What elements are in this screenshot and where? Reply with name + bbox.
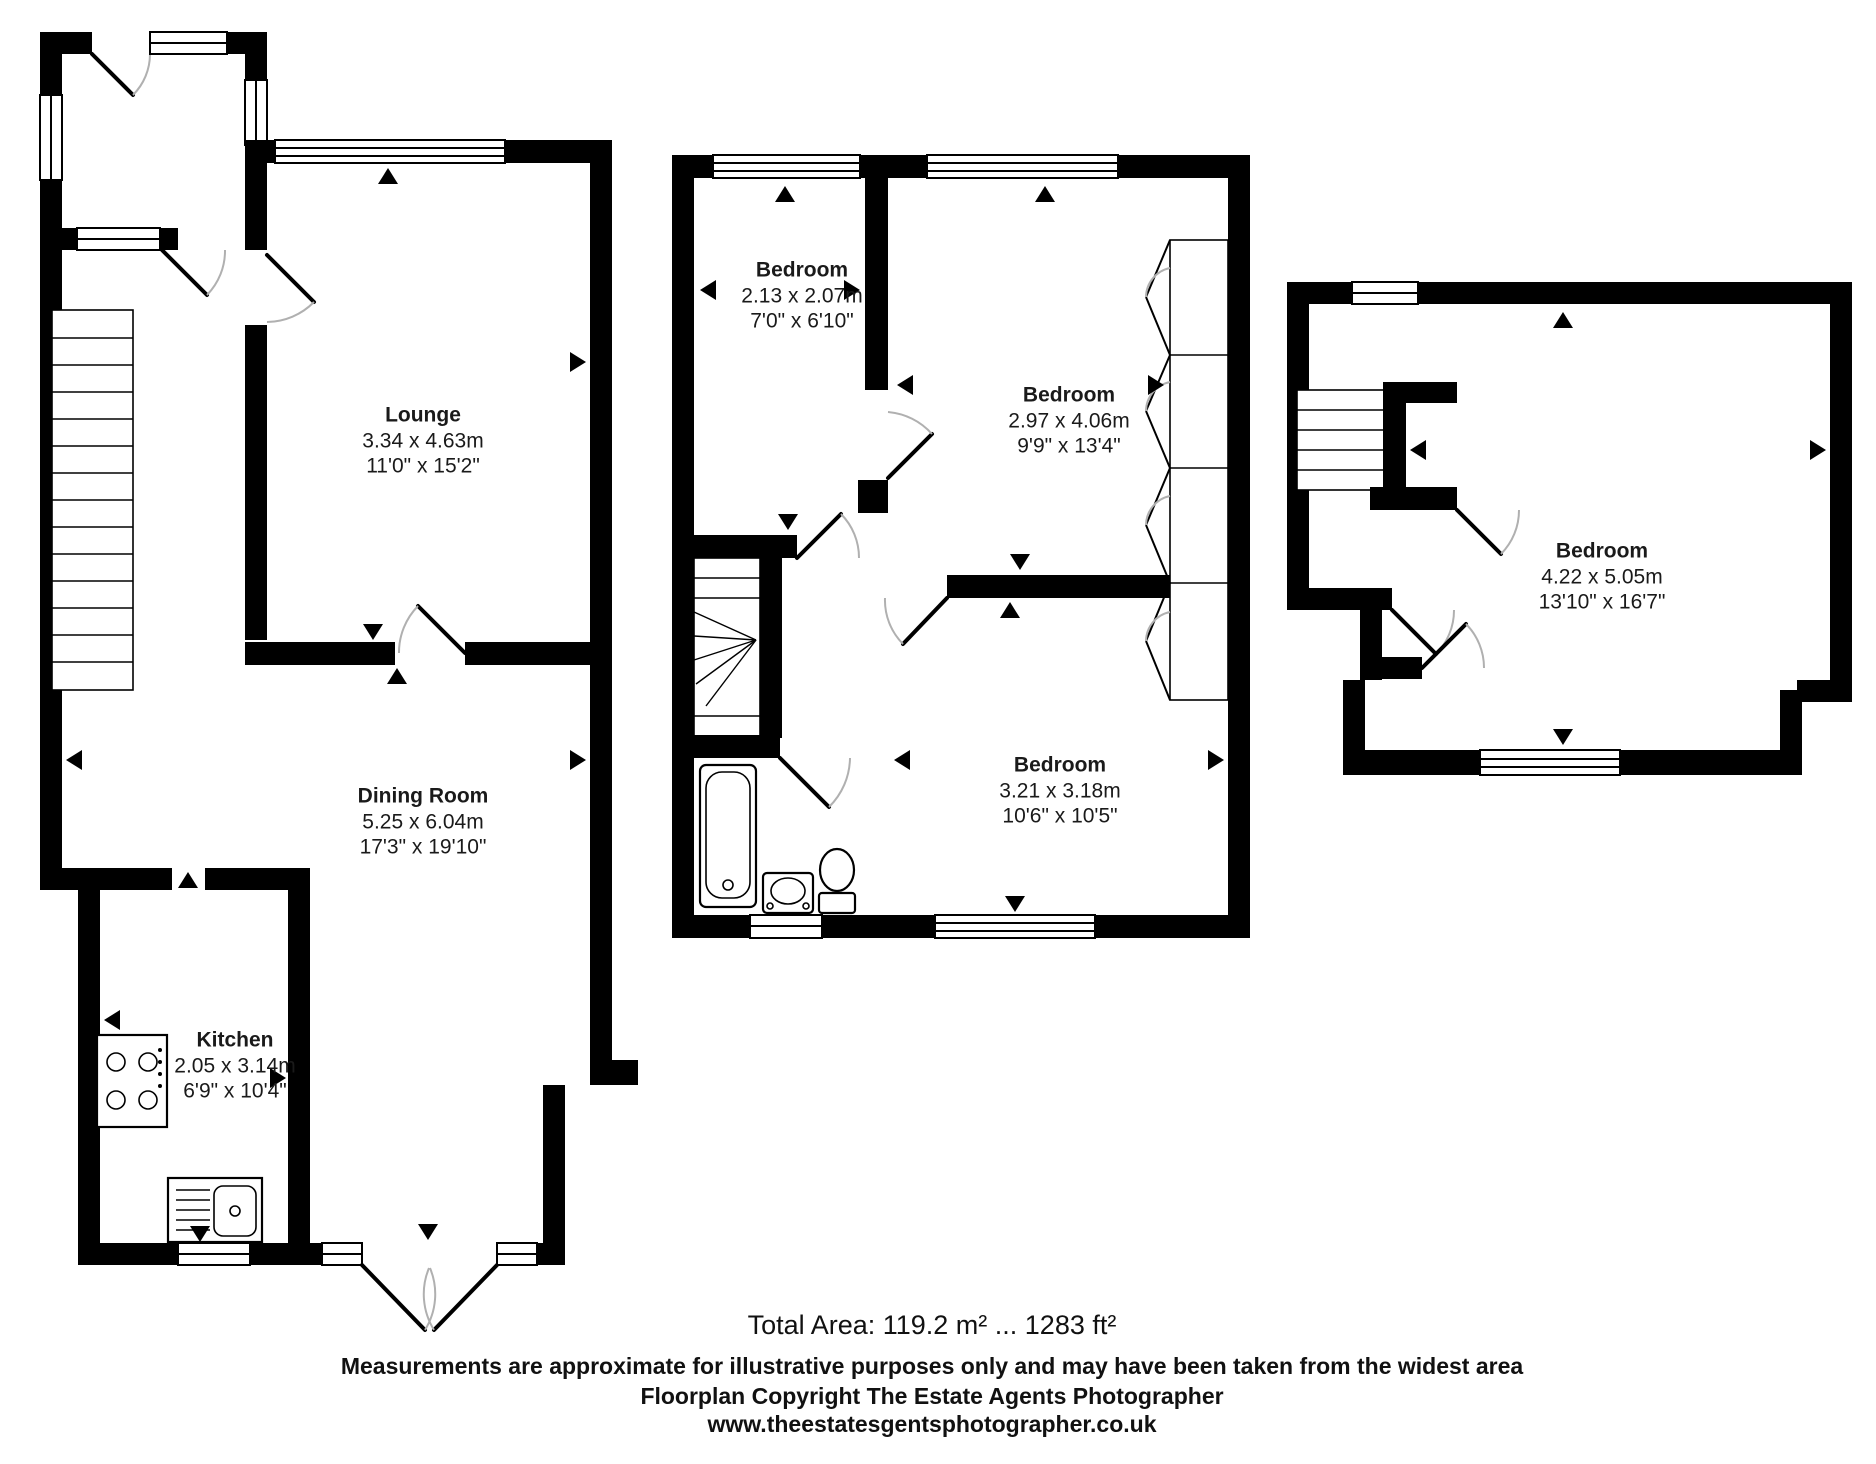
room-label-bedroom-4: Bedroom 4.22 x 5.05m 13'10" x 16'7" <box>1539 539 1666 616</box>
room-dim-imperial: 6'9" x 10'4" <box>174 1079 295 1105</box>
room-dim-metric: 5.25 x 6.04m <box>358 809 489 835</box>
room-label-kitchen: Kitchen 2.05 x 3.14m 6'9" x 10'4" <box>174 1028 295 1105</box>
room-label-bedroom-3: Bedroom 3.21 x 3.18m 10'6" x 10'5" <box>999 753 1120 830</box>
floorplan-page: { "title": "Property Floorplan", "colors… <box>0 0 1876 1464</box>
room-dim-imperial: 11'0" x 15'2" <box>362 454 483 480</box>
room-dim-metric: 3.34 x 4.63m <box>362 428 483 454</box>
room-name: Bedroom <box>1008 383 1129 409</box>
room-label-bedroom-1: Bedroom 2.13 x 2.07m 7'0" x 6'10" <box>741 258 862 335</box>
room-dim-metric: 3.21 x 3.18m <box>999 778 1120 804</box>
disclaimer-text: Measurements are approximate for illustr… <box>341 1353 1523 1380</box>
total-area-text: Total Area: 119.2 m² ... 1283 ft² <box>748 1310 1117 1341</box>
ground-floor-plan <box>40 32 638 1330</box>
room-name: Dining Room <box>358 784 489 810</box>
second-floor-plan <box>1287 282 1852 775</box>
room-dim-imperial: 10'6" x 10'5" <box>999 804 1120 830</box>
room-label-bedroom-2: Bedroom 2.97 x 4.06m 9'9" x 13'4" <box>1008 383 1129 460</box>
room-dim-metric: 2.13 x 2.07m <box>741 283 862 309</box>
room-dim-imperial: 13'10" x 16'7" <box>1539 590 1666 616</box>
room-dim-imperial: 17'3" x 19'10" <box>358 835 489 861</box>
room-name: Bedroom <box>999 753 1120 779</box>
room-label-lounge: Lounge 3.34 x 4.63m 11'0" x 15'2" <box>362 403 483 480</box>
website-text: www.theestatesgentsphotographer.co.uk <box>707 1411 1156 1438</box>
copyright-text: Floorplan Copyright The Estate Agents Ph… <box>640 1383 1223 1410</box>
room-dim-metric: 2.97 x 4.06m <box>1008 408 1129 434</box>
room-dim-imperial: 9'9" x 13'4" <box>1008 434 1129 460</box>
room-dim-metric: 2.05 x 3.14m <box>174 1053 295 1079</box>
room-name: Lounge <box>362 403 483 429</box>
room-dim-imperial: 7'0" x 6'10" <box>741 309 862 335</box>
floorplan-drawing: .w{fill:#000;} .win{fill:#fff;stroke:#00… <box>0 0 1876 1464</box>
room-name: Bedroom <box>741 258 862 284</box>
room-name: Bedroom <box>1539 539 1666 565</box>
room-name: Kitchen <box>174 1028 295 1054</box>
room-label-dining: Dining Room 5.25 x 6.04m 17'3" x 19'10" <box>358 784 489 861</box>
room-dim-metric: 4.22 x 5.05m <box>1539 564 1666 590</box>
